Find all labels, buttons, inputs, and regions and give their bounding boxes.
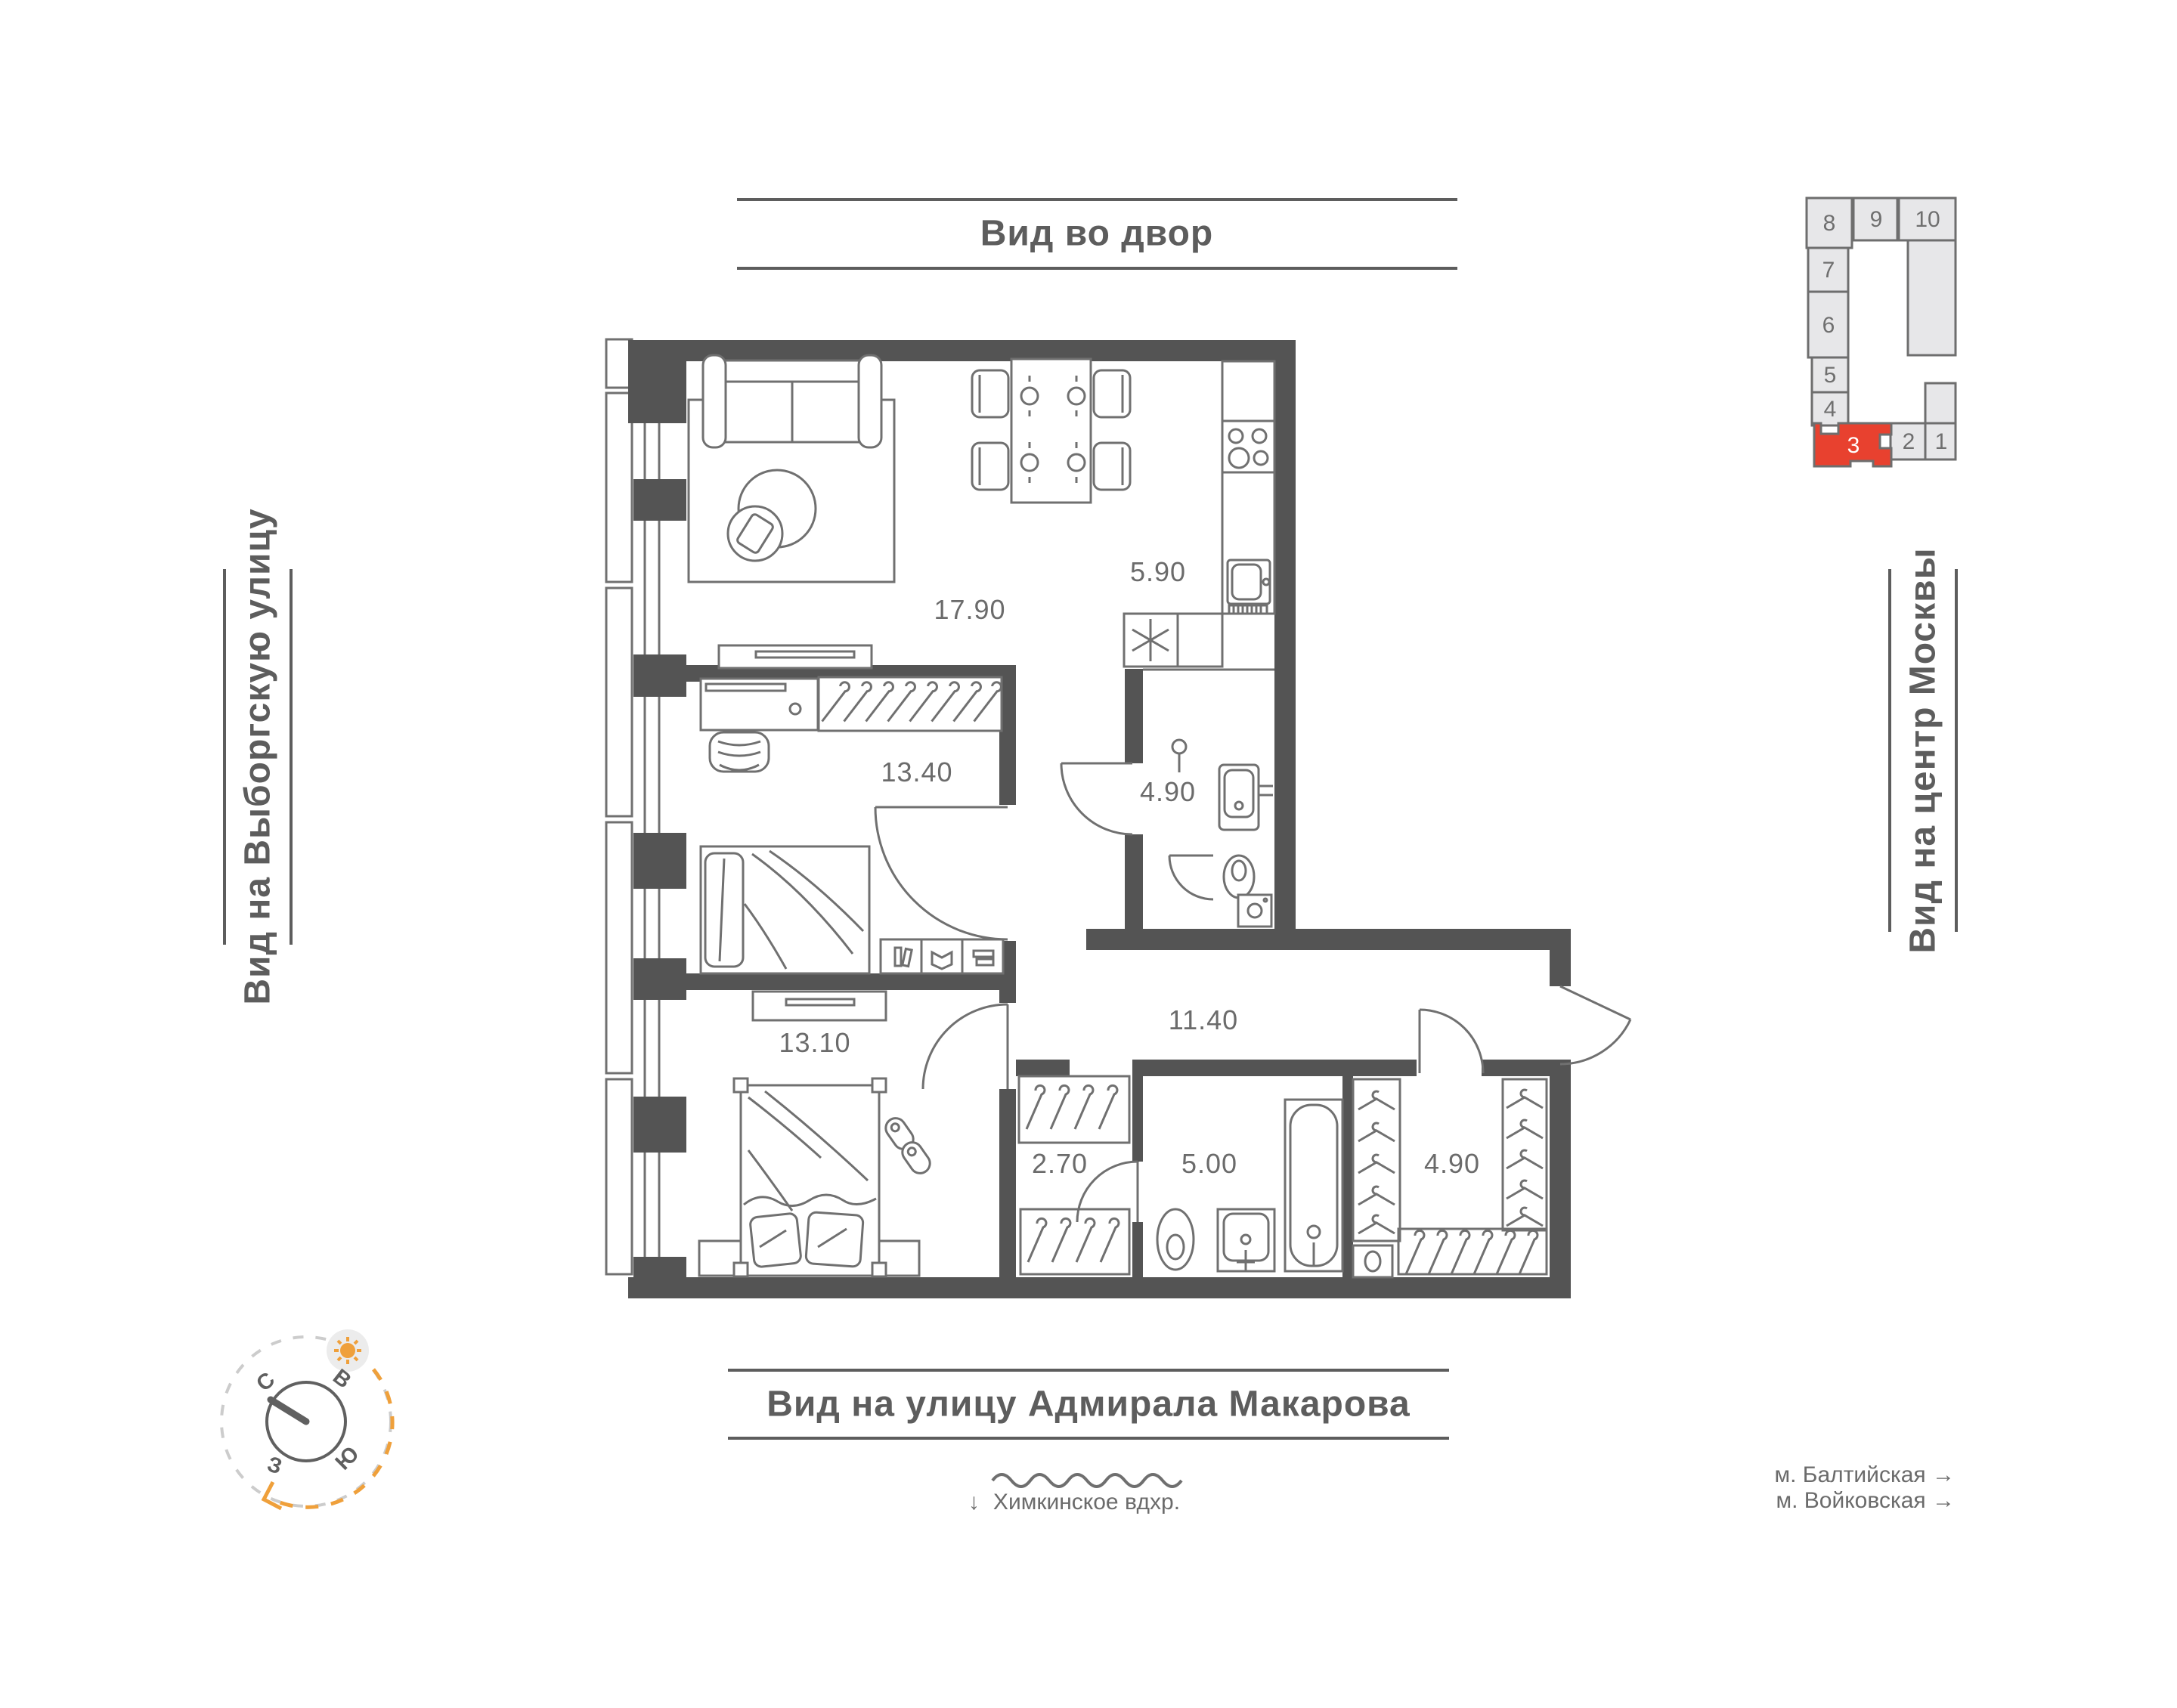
room-area-living-room: 17.90 — [934, 594, 1005, 626]
minimap-unit-3-selected[interactable]: 3 — [1847, 433, 1860, 459]
compass-icon — [221, 1329, 392, 1508]
view-label-left: Вид на Выборгскую улицу — [237, 508, 279, 1004]
room-area-bathroom-1: 4.90 — [1140, 776, 1196, 808]
minimap-unit-9[interactable]: 9 — [1870, 207, 1883, 233]
room-area-kitchen: 5.90 — [1130, 556, 1186, 588]
minimap-unit-1[interactable]: 1 — [1935, 429, 1948, 455]
minimap-unit-5[interactable]: 5 — [1824, 363, 1837, 388]
minimap-unit-8[interactable]: 8 — [1823, 211, 1836, 237]
reservoir-label: ↓ Химкинское вдхр. — [968, 1490, 1180, 1515]
bathroom-2-fixtures — [1157, 1100, 1342, 1271]
dining-set — [972, 359, 1130, 503]
room-area-closet: 2.70 — [1032, 1148, 1088, 1180]
minimap-unit-10[interactable]: 10 — [1915, 207, 1940, 233]
metro-line-2: м. Войковская → — [1776, 1488, 1955, 1514]
minimap-unit-7[interactable]: 7 — [1822, 258, 1835, 283]
wave-icon — [993, 1474, 1181, 1487]
bathroom-1-fixtures — [1172, 740, 1273, 927]
reservoir-name: Химкинское вдхр. — [993, 1490, 1180, 1515]
room-area-hallway: 11.40 — [1169, 1004, 1238, 1036]
living-room-furniture — [689, 355, 894, 668]
view-label-right: Вид на центр Москвы — [1903, 547, 1944, 953]
room-area-bedroom-1: 13.40 — [881, 757, 952, 788]
minimap-unit-6[interactable]: 6 — [1822, 313, 1835, 339]
floorplan-page: Вид во двор Вид на Выборгскую улицу Вид … — [0, 0, 2177, 1708]
room-area-bathroom-2: 5.00 — [1181, 1148, 1237, 1180]
down-arrow-icon: ↓ — [968, 1490, 980, 1515]
metro-line-1: м. Балтийская → — [1775, 1462, 1955, 1488]
room-area-wardrobe: 4.90 — [1424, 1148, 1480, 1180]
room-area-bedroom-2: 13.10 — [779, 1027, 850, 1059]
view-label-bottom: Вид на улицу Адмирала Макарова — [766, 1384, 1410, 1425]
minimap-unit-4[interactable]: 4 — [1824, 397, 1837, 422]
minimap-unit-2[interactable]: 2 — [1903, 429, 1915, 455]
view-label-top: Вид во двор — [980, 213, 1214, 255]
floor-plan-graphic — [0, 0, 2177, 1708]
doors — [875, 763, 1630, 1222]
